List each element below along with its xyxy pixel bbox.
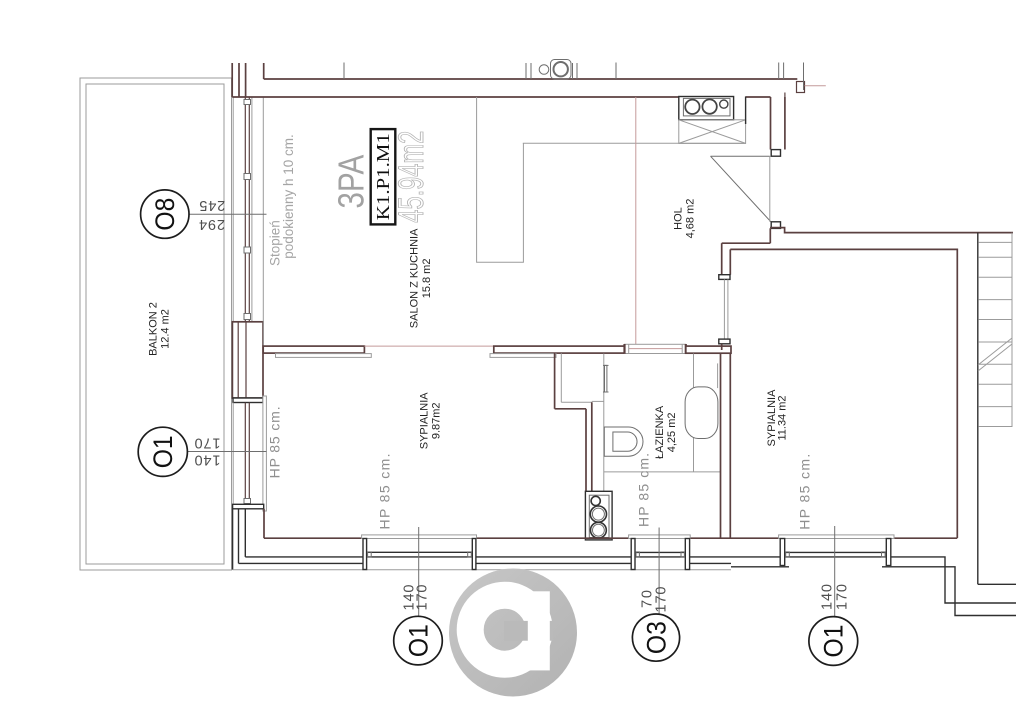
svg-text:12.4 m2: 12.4 m2 [160, 309, 172, 349]
svg-text:SALON Z KUCHNIA: SALON Z KUCHNIA [409, 228, 421, 328]
svg-text:O1: O1 [148, 435, 178, 468]
svg-text:3PA: 3PA [330, 155, 371, 209]
svg-text:15.8 m2: 15.8 m2 [421, 259, 433, 299]
svg-text:245: 245 [199, 197, 225, 213]
svg-text:170: 170 [835, 584, 851, 610]
svg-text:45.94m2: 45.94m2 [392, 131, 431, 223]
svg-text:HP 85 cm.: HP 85 cm. [636, 453, 652, 527]
svg-text:294: 294 [199, 216, 225, 232]
svg-text:K1.P1.M1: K1.P1.M1 [373, 133, 393, 220]
svg-text:140: 140 [820, 584, 836, 610]
svg-text:170: 170 [414, 585, 430, 611]
svg-text:O3: O3 [641, 621, 671, 654]
svg-text:HP 85 cm.: HP 85 cm. [267, 406, 283, 478]
svg-text:SYPIALNIA: SYPIALNIA [419, 392, 431, 450]
svg-text:ŁAZIENKA: ŁAZIENKA [654, 405, 666, 459]
svg-text:11.34 m2: 11.34 m2 [777, 395, 789, 440]
svg-text:4,25 m2: 4,25 m2 [666, 413, 678, 453]
svg-text:170: 170 [195, 434, 221, 450]
svg-text:HP 85 cm.: HP 85 cm. [376, 454, 392, 530]
svg-text:9.87m2: 9.87m2 [430, 402, 442, 439]
svg-text:140: 140 [195, 452, 221, 468]
svg-text:4,68 m2: 4,68 m2 [685, 199, 697, 239]
svg-text:podokienny h 10 cm.: podokienny h 10 cm. [281, 134, 296, 259]
svg-text:O1: O1 [819, 625, 849, 658]
svg-text:BALKON 2: BALKON 2 [148, 302, 160, 356]
svg-text:O1: O1 [403, 624, 433, 657]
svg-text:O8: O8 [150, 198, 180, 231]
svg-text:HOL: HOL [673, 207, 685, 230]
svg-text:170: 170 [653, 587, 669, 613]
svg-text:HP 85 cm.: HP 85 cm. [797, 454, 813, 530]
